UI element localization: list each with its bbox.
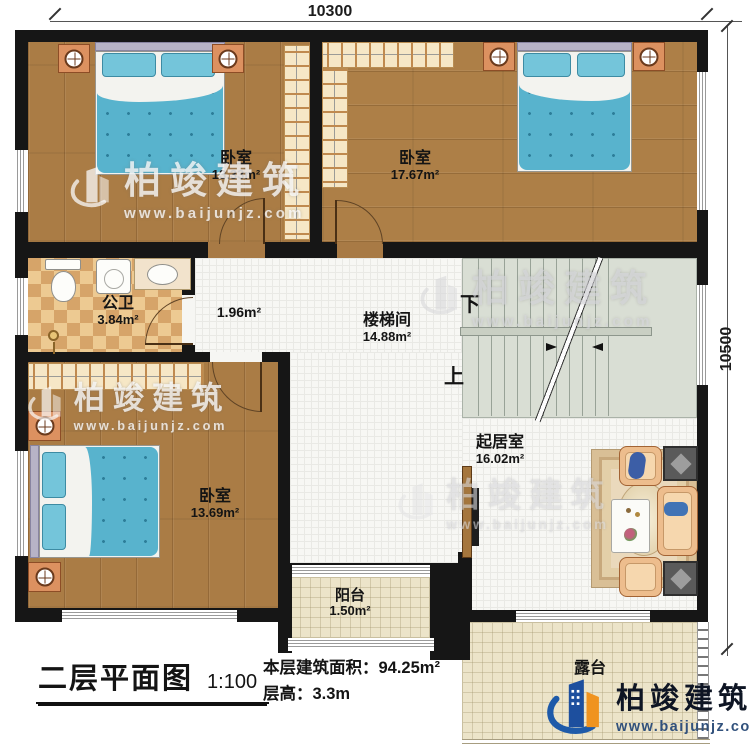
side-table-top xyxy=(670,453,691,474)
stair-direction-arrow xyxy=(546,343,557,351)
floor-drain-icon xyxy=(48,330,59,341)
floor-plan-canvas: 10300 10500 下 上 xyxy=(0,0,750,751)
terrace-sliding-door xyxy=(516,611,650,622)
balcony-railing xyxy=(288,638,434,651)
sink-counter xyxy=(134,258,191,290)
window xyxy=(697,285,708,385)
lamp-icon xyxy=(35,568,54,587)
room-label-bedroom-tr: 卧室 17.67m² xyxy=(355,150,475,183)
cushion xyxy=(625,563,656,591)
plan-title-block: 二层平面图1:100 xyxy=(36,655,269,704)
floor-area-value: 94.25m² xyxy=(379,659,440,677)
dimension-line-top xyxy=(50,21,742,22)
nightstand xyxy=(212,44,244,73)
bed-headboard xyxy=(95,42,225,51)
floor-height-value: 3.3m xyxy=(313,685,351,703)
dimension-tick xyxy=(701,8,714,21)
window xyxy=(697,72,708,210)
room-name: 卧室 xyxy=(155,488,275,506)
room-label-bathroom: 公卫 3.84m² xyxy=(58,295,178,328)
pillow xyxy=(42,452,66,498)
company-url: www.baijunjz.com xyxy=(616,719,750,735)
room-label-bedroom-tl: 卧室 13.33m² xyxy=(176,150,296,183)
bed-fold xyxy=(72,447,92,556)
nightstand xyxy=(633,42,665,71)
balcony-sliding-door xyxy=(292,565,430,577)
lamp-icon xyxy=(640,47,659,66)
side-table-top xyxy=(670,568,691,589)
wardrobe xyxy=(28,363,204,390)
room-name: 卧室 xyxy=(176,150,296,168)
washer-drum xyxy=(104,269,124,289)
floor-area-line: 本层建筑面积：94.25m² xyxy=(263,655,440,681)
lamp-icon xyxy=(35,417,54,436)
pillow xyxy=(161,53,215,77)
dimension-top-value: 10300 xyxy=(270,3,390,21)
toilet-tank xyxy=(45,259,81,270)
bed xyxy=(517,42,632,172)
window xyxy=(15,150,28,212)
room-area: 1.50m² xyxy=(290,604,410,619)
plan-scale: 1:100 xyxy=(207,671,257,693)
stair-down-label: 下 xyxy=(452,288,488,317)
nightstand xyxy=(58,44,90,73)
wardrobe xyxy=(322,42,454,68)
nightstand xyxy=(483,42,515,71)
room-label-stairwell: 楼梯间 14.88m² xyxy=(327,312,447,345)
lamp-icon xyxy=(219,49,238,68)
side-table xyxy=(663,561,698,596)
room-label-living: 起居室 16.02m² xyxy=(440,434,560,467)
room-name: 卧室 xyxy=(355,150,475,168)
flower-decor xyxy=(624,528,638,542)
room-label-hall: 1.96m² xyxy=(179,304,299,320)
floor-area-label: 本层建筑面积： xyxy=(263,659,379,677)
lamp-icon xyxy=(65,49,84,68)
window xyxy=(62,610,237,622)
room-area: 1.96m² xyxy=(179,304,299,320)
door-leaf xyxy=(335,200,337,244)
door-leaf xyxy=(145,343,193,345)
door-opening xyxy=(210,352,262,362)
side-table xyxy=(663,446,698,481)
room-area: 13.69m² xyxy=(155,506,275,521)
door-leaf xyxy=(260,362,262,412)
stair-handrail xyxy=(460,327,652,336)
plan-info-block: 本层建筑面积：94.25m² 层高：3.3m xyxy=(263,655,440,708)
floor-height-label: 层高： xyxy=(263,685,313,703)
door-opening xyxy=(208,242,265,258)
tv-icon xyxy=(472,488,479,546)
pillow xyxy=(577,53,625,77)
person-figure xyxy=(664,502,688,516)
room-name: 公卫 xyxy=(58,295,178,313)
room-area: 14.88m² xyxy=(327,330,447,345)
wall-stub xyxy=(458,552,472,612)
table-decor xyxy=(626,508,631,513)
pillow xyxy=(42,504,66,550)
door-leaf xyxy=(263,198,265,244)
table-decor xyxy=(635,512,640,517)
sofa xyxy=(657,486,698,556)
window xyxy=(15,278,28,335)
pillow xyxy=(102,53,156,77)
stair-direction-arrow xyxy=(592,343,603,351)
sink-icon xyxy=(147,264,178,285)
dimension-right-value: 10500 xyxy=(718,316,736,382)
nightstand xyxy=(28,562,61,592)
stair-up-label: 上 xyxy=(436,360,472,389)
floor-drain-stem xyxy=(53,342,55,354)
room-area: 16.02m² xyxy=(440,452,560,467)
room-name: 起居室 xyxy=(440,434,560,452)
coffee-table xyxy=(611,499,650,553)
lamp-icon xyxy=(490,47,509,66)
bedroom-top-right-floor xyxy=(322,42,697,242)
plan-title: 二层平面图 xyxy=(38,663,193,695)
company-logo: 柏竣建筑 www.baijunjz.com xyxy=(544,672,750,738)
room-name: 阳台 xyxy=(290,587,410,604)
room-area: 3.84m² xyxy=(58,313,178,328)
washing-machine-icon xyxy=(96,259,131,294)
terrace-railing xyxy=(462,739,710,744)
floor-height-line: 层高：3.3m xyxy=(263,681,440,707)
window xyxy=(15,451,28,556)
bed-headboard xyxy=(30,445,39,558)
room-label-bedroom-bl: 卧室 13.69m² xyxy=(155,488,275,521)
room-area: 13.33m² xyxy=(176,168,296,183)
wardrobe xyxy=(284,45,310,240)
cushion xyxy=(663,492,692,550)
dimension-tick xyxy=(49,8,62,21)
door-opening xyxy=(337,242,383,258)
wardrobe xyxy=(322,68,348,188)
room-label-balcony: 阳台 1.50m² xyxy=(290,587,410,619)
tv-wall xyxy=(462,466,472,558)
room-name: 楼梯间 xyxy=(327,312,447,330)
company-brand: 柏竣建筑 xyxy=(616,675,750,717)
company-logo-icon xyxy=(544,672,606,738)
room-area: 17.67m² xyxy=(355,168,475,183)
bed-headboard xyxy=(517,42,632,51)
bed xyxy=(30,445,160,558)
nightstand xyxy=(28,411,61,441)
pillow xyxy=(523,53,571,77)
company-logo-text: 柏竣建筑 www.baijunjz.com xyxy=(616,675,750,735)
armchair xyxy=(619,557,662,597)
